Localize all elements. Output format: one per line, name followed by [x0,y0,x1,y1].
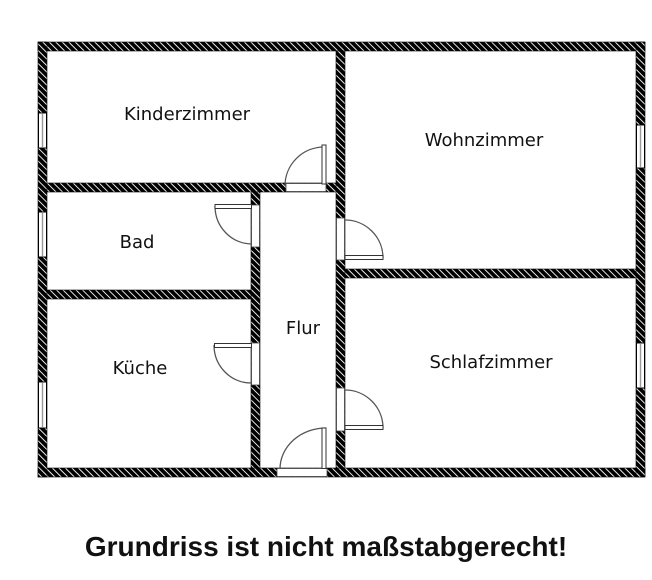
door-leaf [322,145,326,184]
floorplan-page: Kinderzimmer Wohnzimmer Bad Küche Flur S… [0,0,652,580]
door-wohnzimmer [337,218,384,260]
outer-wall-bottom [38,468,645,477]
door-leaf [345,256,383,260]
wall-wohn-schlaf-divider [345,269,636,278]
wall-bad-kueche-divider [47,290,251,299]
room-label-wohnzimmer: Wohnzimmer [425,130,544,151]
door-leaf [322,428,326,469]
room-label-bad: Bad [120,232,155,253]
door-swing-arc-icon [345,390,383,428]
door-opening [252,343,260,385]
floorplan-drawing: Kinderzimmer Wohnzimmer Bad Küche Flur S… [0,0,652,580]
door-swing-arc-icon [280,428,326,469]
door-opening [277,469,327,477]
window-bad [39,212,47,257]
door-bad [215,205,260,248]
caption-not-to-scale: Grundriss ist nicht maßstabgerecht! [0,531,652,563]
room-label-kueche: Küche [113,358,168,379]
outer-wall-top [38,42,645,51]
window-schlafzimmer [637,343,645,388]
door-opening [337,218,345,260]
door-swing-arc-icon [285,147,324,186]
door-schlafzimmer [337,388,384,431]
door-opening [286,184,326,192]
door-leaf [215,205,252,209]
door-opening [337,388,345,431]
room-label-schlafzimmer: Schlafzimmer [429,352,553,373]
door-swing-arc-icon [345,220,383,258]
door-kinderzimmer [285,145,326,192]
window-wohnzimmer [637,125,645,168]
outer-wall-right [636,42,645,477]
door-leaf [345,426,383,430]
door-swing-arc-icon [214,345,251,383]
room-labels: Kinderzimmer Wohnzimmer Bad Küche Flur S… [113,104,553,379]
doors [214,145,383,477]
door-opening [252,205,260,247]
door-entrance [277,428,327,477]
door-kueche [214,343,260,385]
door-leaf [215,344,252,348]
window-kinderzimmer [39,113,47,148]
room-label-flur: Flur [286,318,321,339]
window-kueche [39,382,47,428]
door-swing-arc-icon [215,206,252,244]
room-label-kinderzimmer: Kinderzimmer [124,104,251,125]
